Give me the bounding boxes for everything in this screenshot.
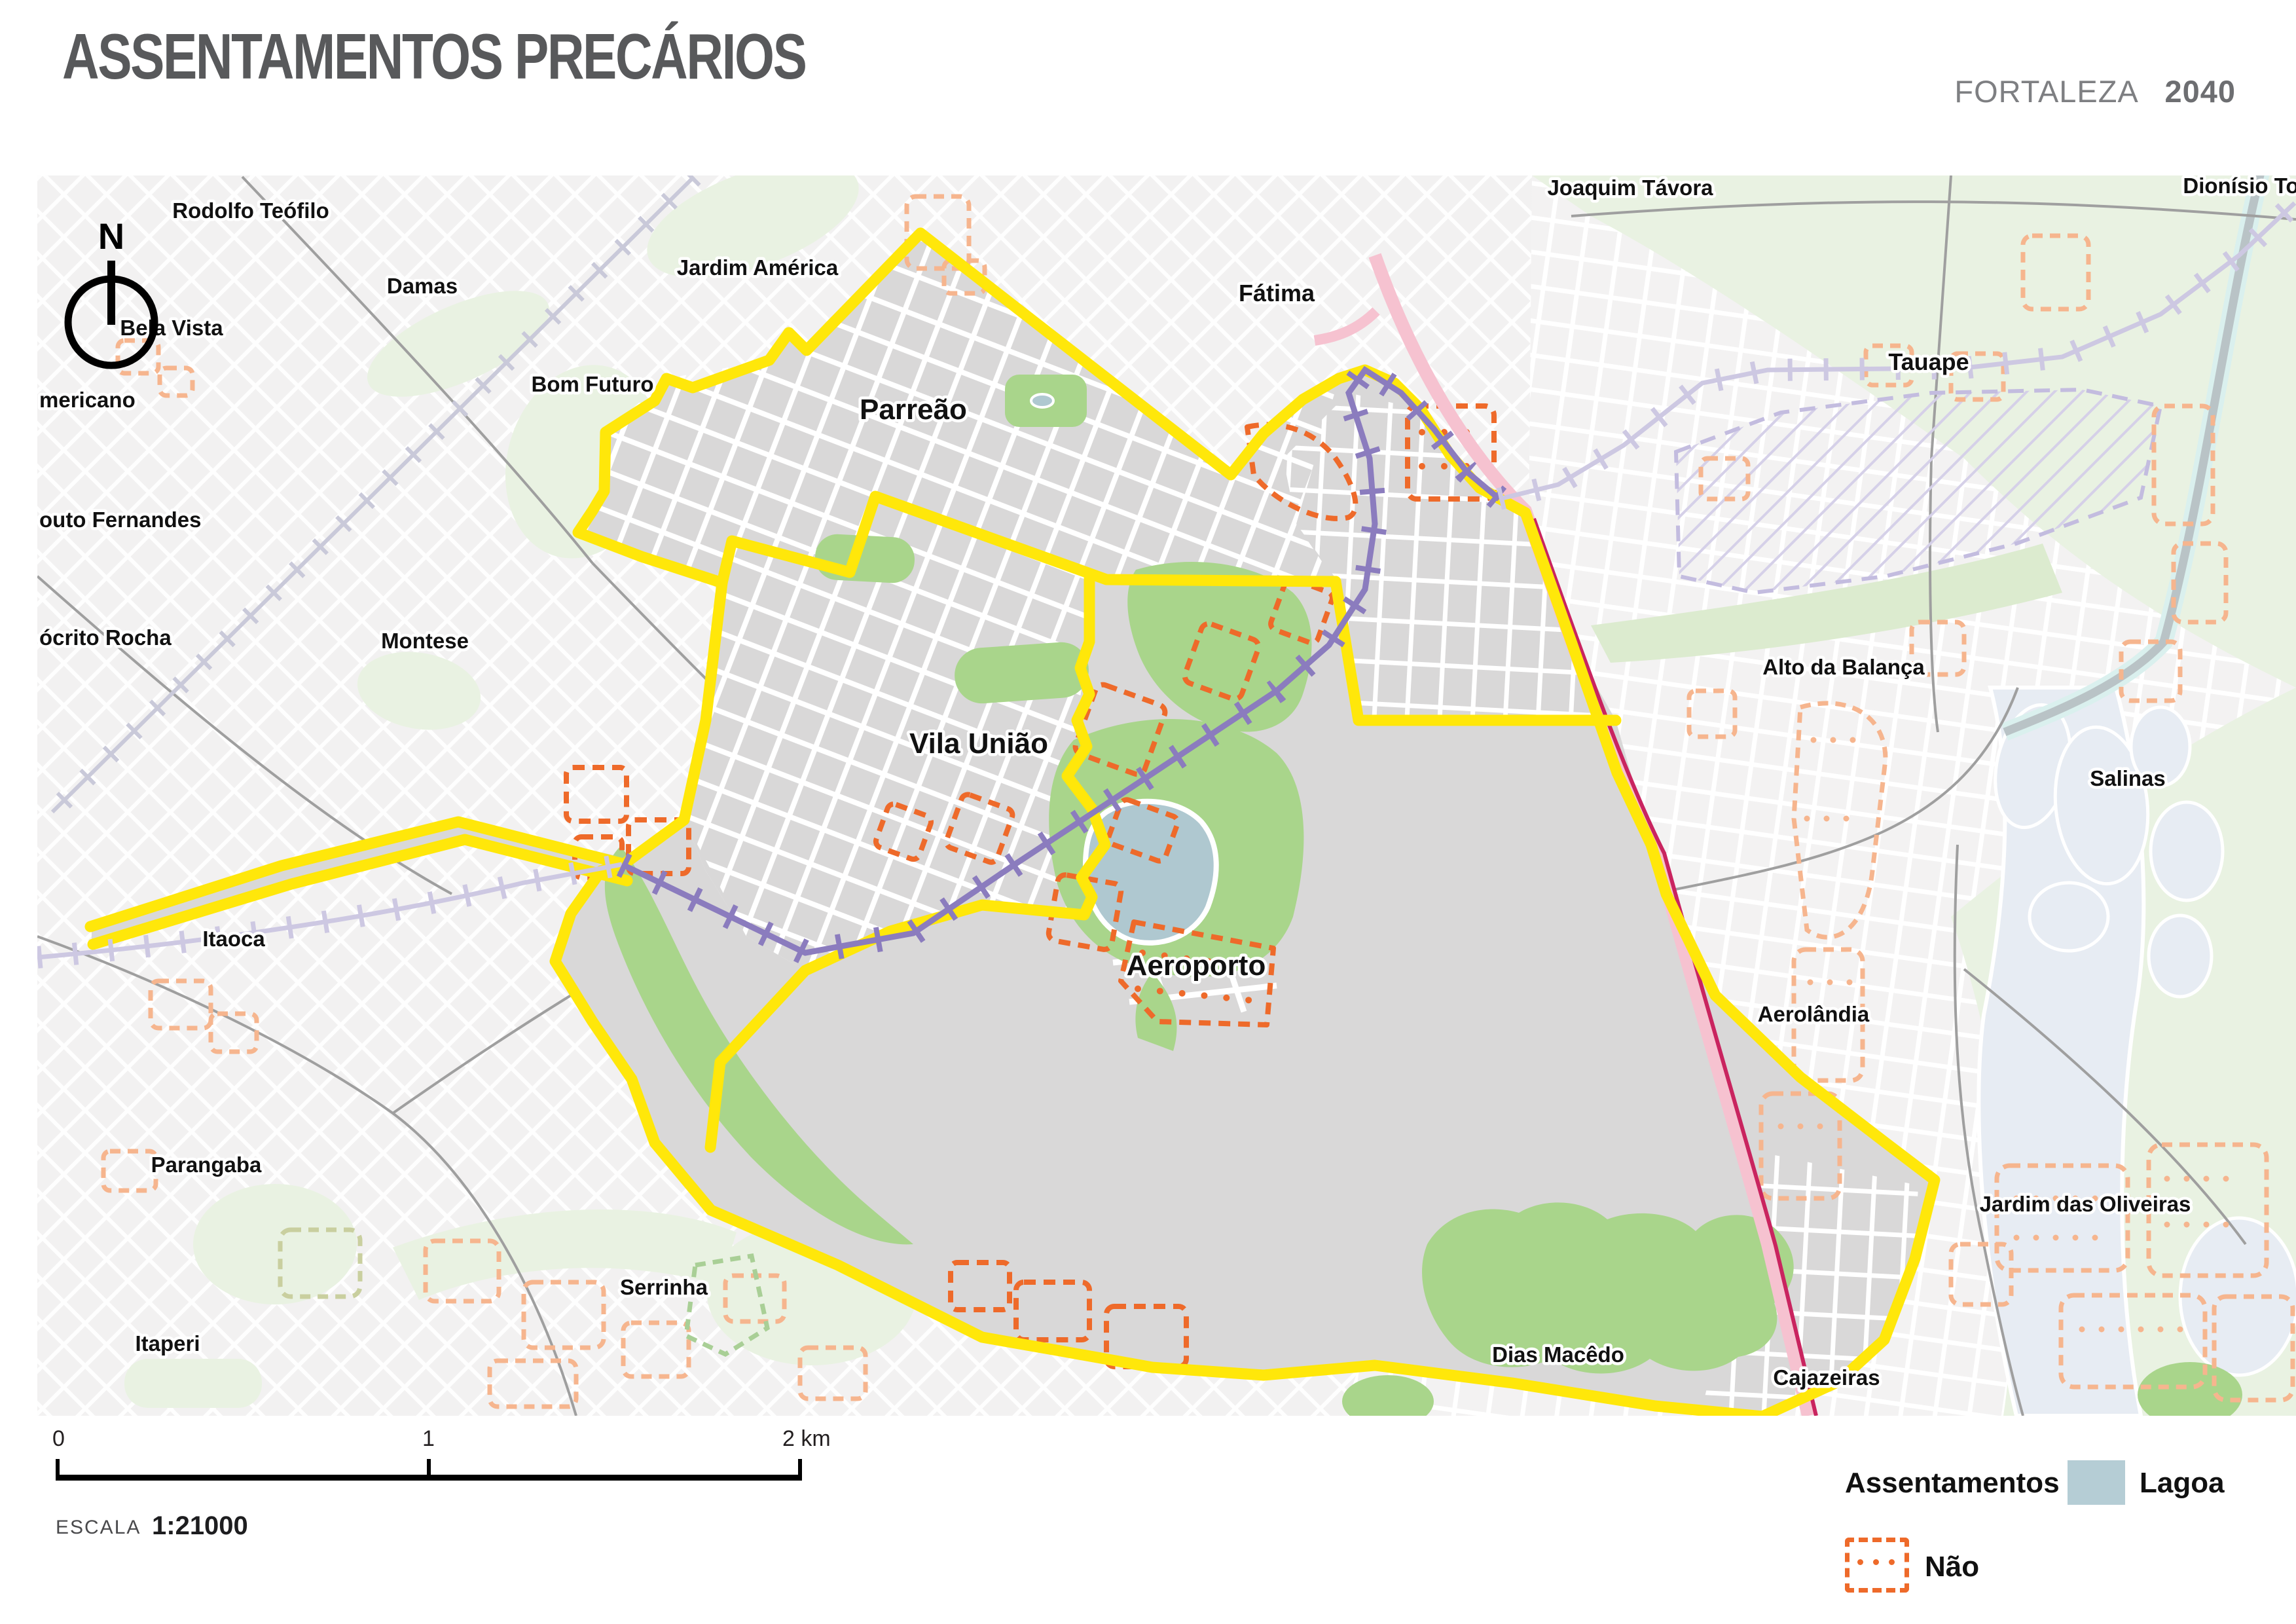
map-label: Parreão	[860, 394, 967, 426]
page-title: ASSENTAMENTOS PRECÁRIOS	[62, 20, 805, 94]
scale-tick-1: 1	[422, 1426, 435, 1452]
map-label: mericano	[39, 388, 136, 412]
map-label: Bela Vista	[120, 316, 223, 340]
map-canvas[interactable]: Rodolfo TeófiloDamasBela Vistamericanoou…	[37, 175, 2296, 1416]
settlement-no-swatch	[1845, 1538, 1909, 1593]
legend-title: Assentamentos	[1845, 1467, 2060, 1500]
brand-year: 2040	[2164, 74, 2236, 109]
map-label: Cajazeiras	[1773, 1365, 1880, 1390]
map-label: Damas	[387, 274, 458, 298]
map-label: Bom Futuro	[532, 372, 654, 396]
map-label: Jardim das Oliveiras	[1980, 1192, 2191, 1216]
map-label: ócrito Rocha	[39, 625, 172, 650]
scale-bar-tick	[56, 1459, 60, 1481]
map-label: Vila União	[909, 728, 1048, 760]
scale-tick-0: 0	[52, 1426, 65, 1452]
map-label: Dionísio Torre	[2183, 175, 2296, 198]
map-label: outo Fernandes	[39, 507, 202, 532]
map-label: Alto da Balança	[1762, 655, 1925, 679]
map-poster-page: { "header": { "title": "ASSENTAMENTOS PR…	[0, 0, 2296, 1624]
brand-mark: FORTALEZA 2040	[1954, 73, 2236, 109]
escala-ratio: 1:21000	[152, 1511, 248, 1541]
map-label: Fátima	[1239, 280, 1315, 306]
scale-bar-tick	[798, 1459, 802, 1481]
map-label: Dias Macêdo	[1492, 1342, 1624, 1367]
map-label: Montese	[381, 629, 469, 653]
map-label: Aeroporto	[1127, 950, 1266, 982]
legend-item-nao: Não	[1925, 1551, 1979, 1583]
brand-city: FORTALEZA	[1954, 74, 2137, 109]
scale-tick-2: 2 km	[782, 1426, 831, 1452]
city-map: Rodolfo TeófiloDamasBela Vistamericanoou…	[37, 175, 2296, 1416]
map-label: Jardim América	[677, 255, 839, 280]
scale-bar-tick	[427, 1459, 431, 1481]
escala-label: ESCALA	[56, 1517, 141, 1539]
map-label: Joaquim Távora	[1547, 175, 1713, 200]
lagoon-swatch	[2068, 1460, 2125, 1505]
map-label: Aerolândia	[1758, 1002, 1870, 1026]
map-label: Itaperi	[135, 1331, 200, 1356]
map-label: Salinas	[2090, 766, 2166, 790]
map-label: Tauape	[1888, 348, 1969, 375]
map-label: Parangaba	[151, 1153, 262, 1177]
map-label: Itaoca	[202, 927, 265, 951]
north-label: N	[98, 215, 124, 257]
legend-item-lagoa: Lagoa	[2140, 1467, 2225, 1500]
map-label: Serrinha	[620, 1275, 708, 1299]
map-label: Rodolfo Teófilo	[172, 198, 329, 223]
